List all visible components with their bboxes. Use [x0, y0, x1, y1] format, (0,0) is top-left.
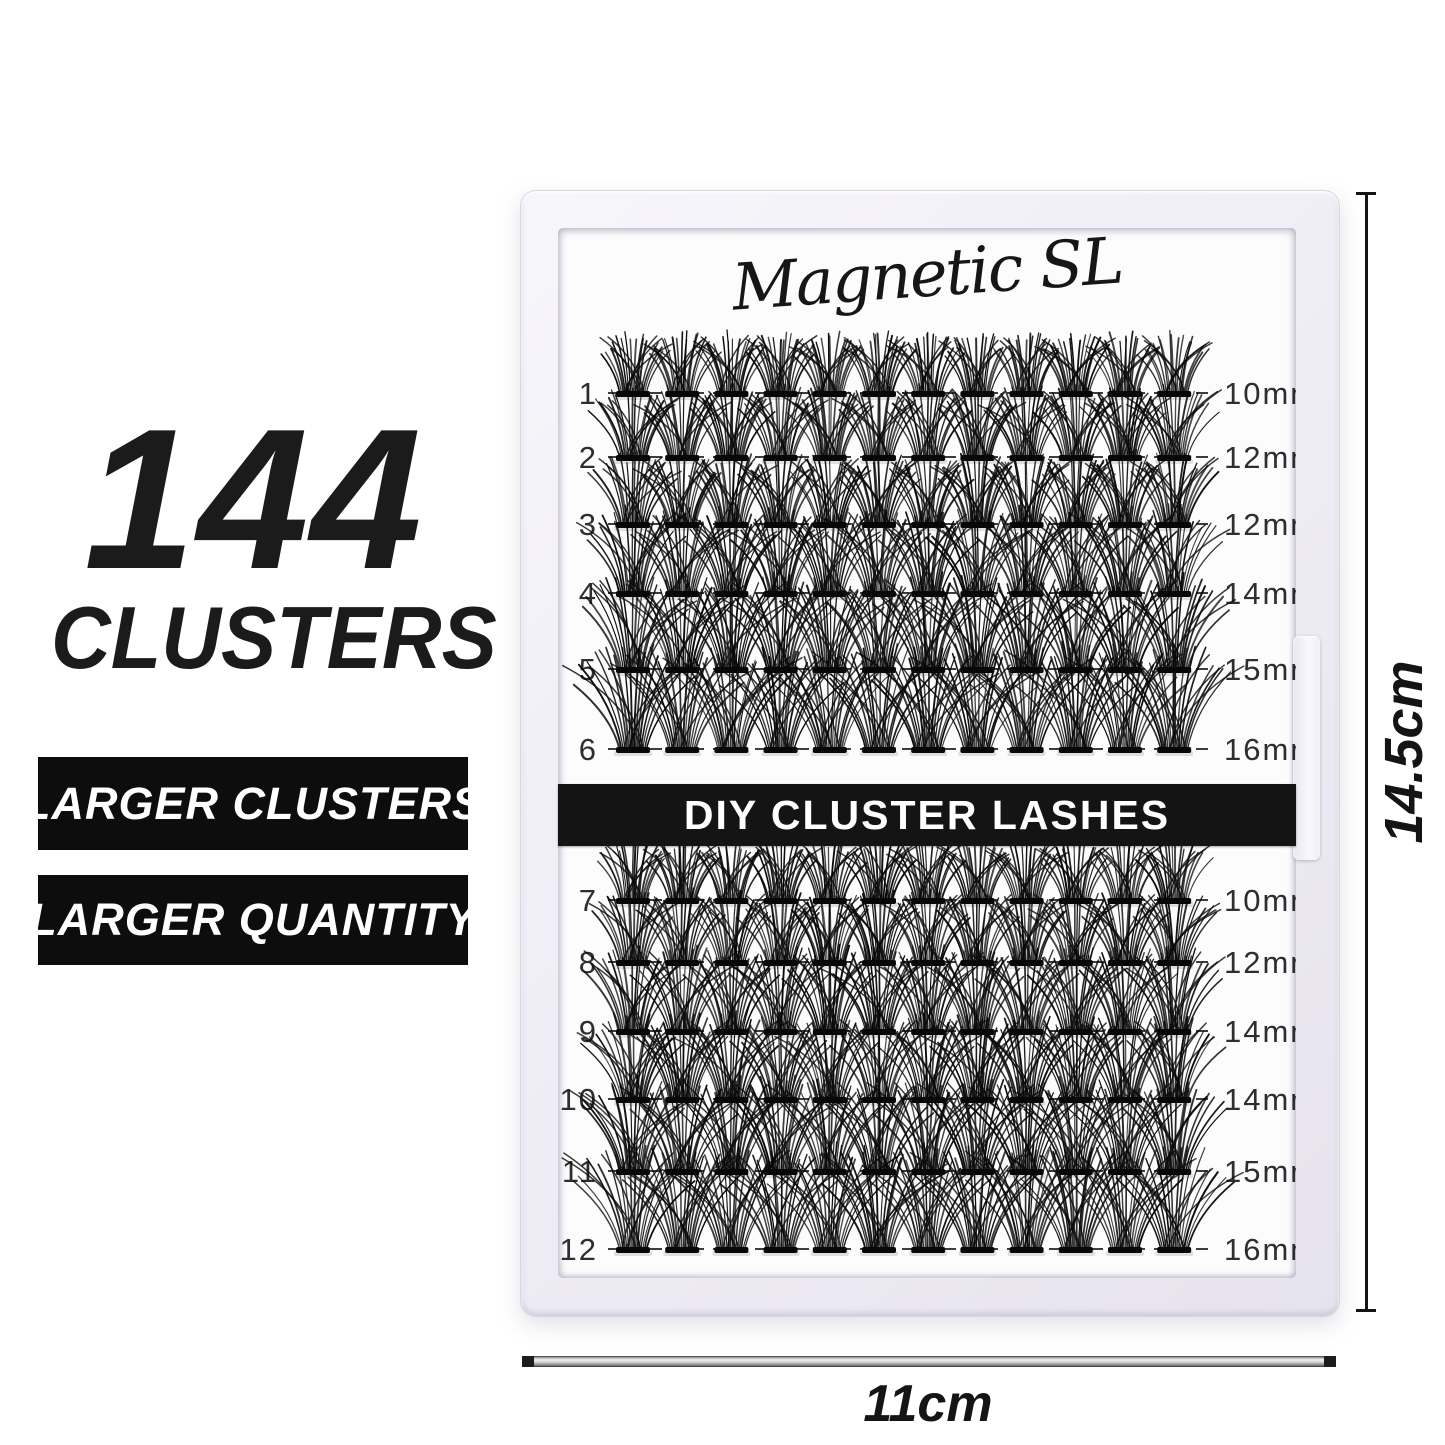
lash-cluster [691, 383, 775, 465]
row-size-label: 16mm [1224, 1232, 1296, 1267]
height-dimension-label: 14.5cm [1373, 660, 1435, 843]
lash-cluster [1136, 837, 1213, 907]
headline: 144 CLUSTERS [38, 408, 470, 682]
badge-larger-clusters: LARGER CLUSTERS [38, 757, 468, 850]
lash-grid: 110mm212mm312mm414mm515mm616mm710mm812mm… [558, 228, 1296, 1278]
width-dimension-label: 11cm [863, 1374, 992, 1434]
product-banner-label: DIY CLUSTER LASHES [684, 792, 1170, 839]
row-size-label: 15mm [1224, 652, 1296, 687]
row-number-label: 11 [562, 1154, 598, 1189]
height-measure-cap-top [1356, 192, 1376, 195]
row-size-label: 12mm [1224, 440, 1296, 475]
width-measure-cap-left [522, 1356, 534, 1367]
row-size-label: 12mm [1224, 507, 1296, 542]
cluster-count: 144 [38, 408, 470, 592]
row-number-label: 6 [579, 732, 598, 767]
row-size-label: 16mm [1224, 732, 1296, 767]
width-measure-cap-right [1324, 1356, 1336, 1367]
row-size-label: 14mm [1224, 1014, 1296, 1049]
product-image: 144 CLUSTERS LARGER CLUSTERS LARGER QUAN… [0, 0, 1445, 1445]
height-measure-line [1365, 192, 1368, 1312]
product-banner: DIY CLUSTER LASHES [558, 784, 1296, 846]
badge-larger-clusters-label: LARGER CLUSTERS [23, 778, 483, 830]
row-size-label: 10mm [1224, 883, 1296, 918]
row-number-label: 7 [579, 883, 598, 918]
row-size-label: 12mm [1224, 945, 1296, 980]
row-size-label: 15mm [1224, 1154, 1296, 1189]
row-number-label: 2 [579, 440, 598, 475]
lash-cluster [747, 332, 817, 400]
height-measure-cap-bottom [1356, 1309, 1376, 1312]
row-number-label: 1 [579, 376, 598, 411]
width-measure-bar [524, 1356, 1334, 1367]
badge-larger-quantity: LARGER QUANTITY [38, 875, 468, 965]
row-size-label: 14mm [1224, 576, 1296, 611]
tray-clasp [1293, 636, 1320, 860]
lash-cluster [644, 331, 721, 400]
row-number-label: 3 [579, 507, 598, 542]
cluster-count-word: CLUSTERS [51, 594, 457, 682]
row-size-label: 10mm [1224, 376, 1296, 411]
row-size-label: 14mm [1224, 1082, 1296, 1117]
row-number-label: 12 [560, 1232, 598, 1267]
badge-larger-quantity-label: LARGER QUANTITY [29, 894, 477, 946]
